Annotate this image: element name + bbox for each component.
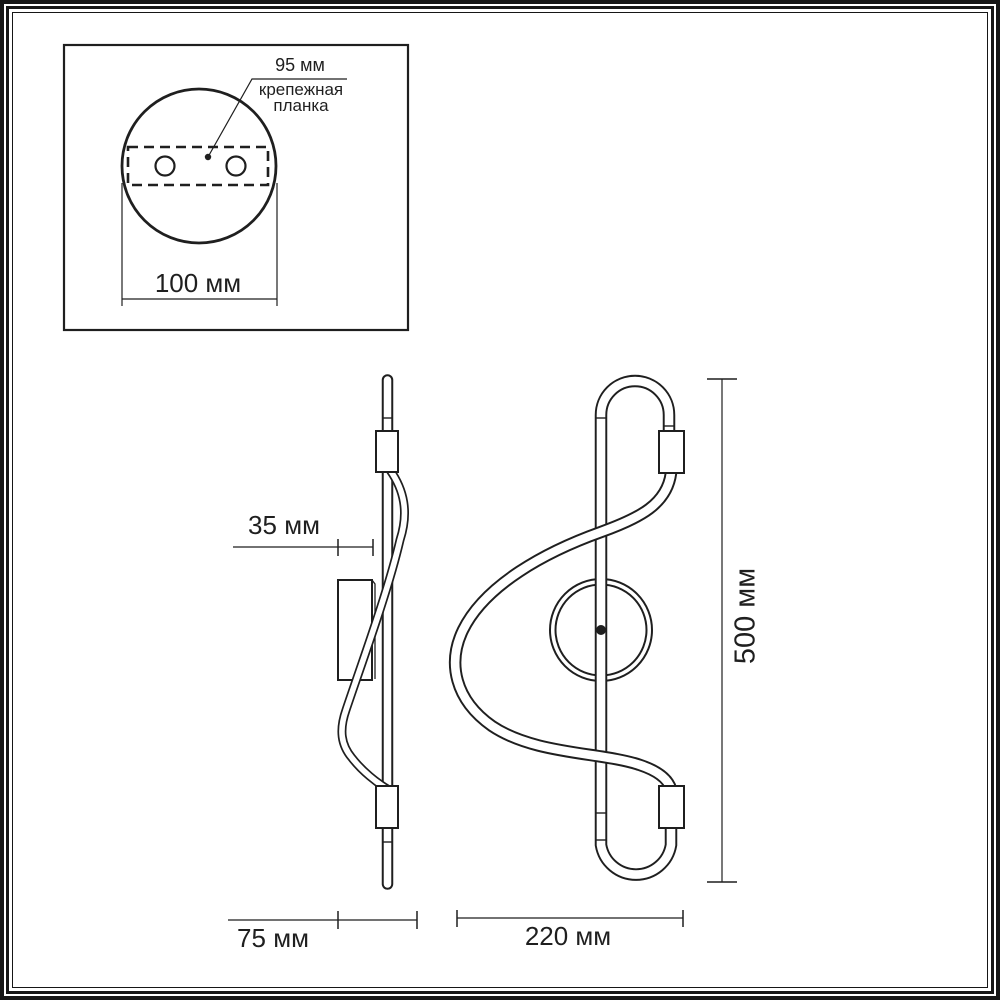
height-label: 500 мм xyxy=(732,568,761,664)
front-view xyxy=(455,379,737,927)
side-sleeve-top xyxy=(376,431,398,472)
depth-label: 75 мм xyxy=(237,925,309,951)
mount-plate-label-line2: планка xyxy=(273,97,328,114)
wall-mount-box-side xyxy=(338,580,372,680)
screw-hole-right xyxy=(227,157,246,176)
mount-base-circle xyxy=(122,89,276,243)
center-fixing-dot xyxy=(596,625,606,635)
front-sleeve-bottom xyxy=(659,786,684,828)
hole-spacing-label: 95 мм xyxy=(275,56,325,74)
front-sleeve-top xyxy=(659,431,684,473)
side-sleeve-bottom xyxy=(376,786,398,828)
base-diameter-label: 100 мм xyxy=(155,270,241,296)
screw-hole-left xyxy=(156,157,175,176)
width-label: 220 мм xyxy=(525,923,611,949)
mount-bracket-dashed-outline xyxy=(128,147,268,185)
technical-drawing-page: 95 мм крепежная планка 100 мм 35 мм 75 м… xyxy=(0,0,1000,1000)
side-view xyxy=(228,380,417,929)
lamp-dimension-drawing xyxy=(0,0,1000,1000)
plate-offset-label: 35 мм xyxy=(248,512,320,538)
